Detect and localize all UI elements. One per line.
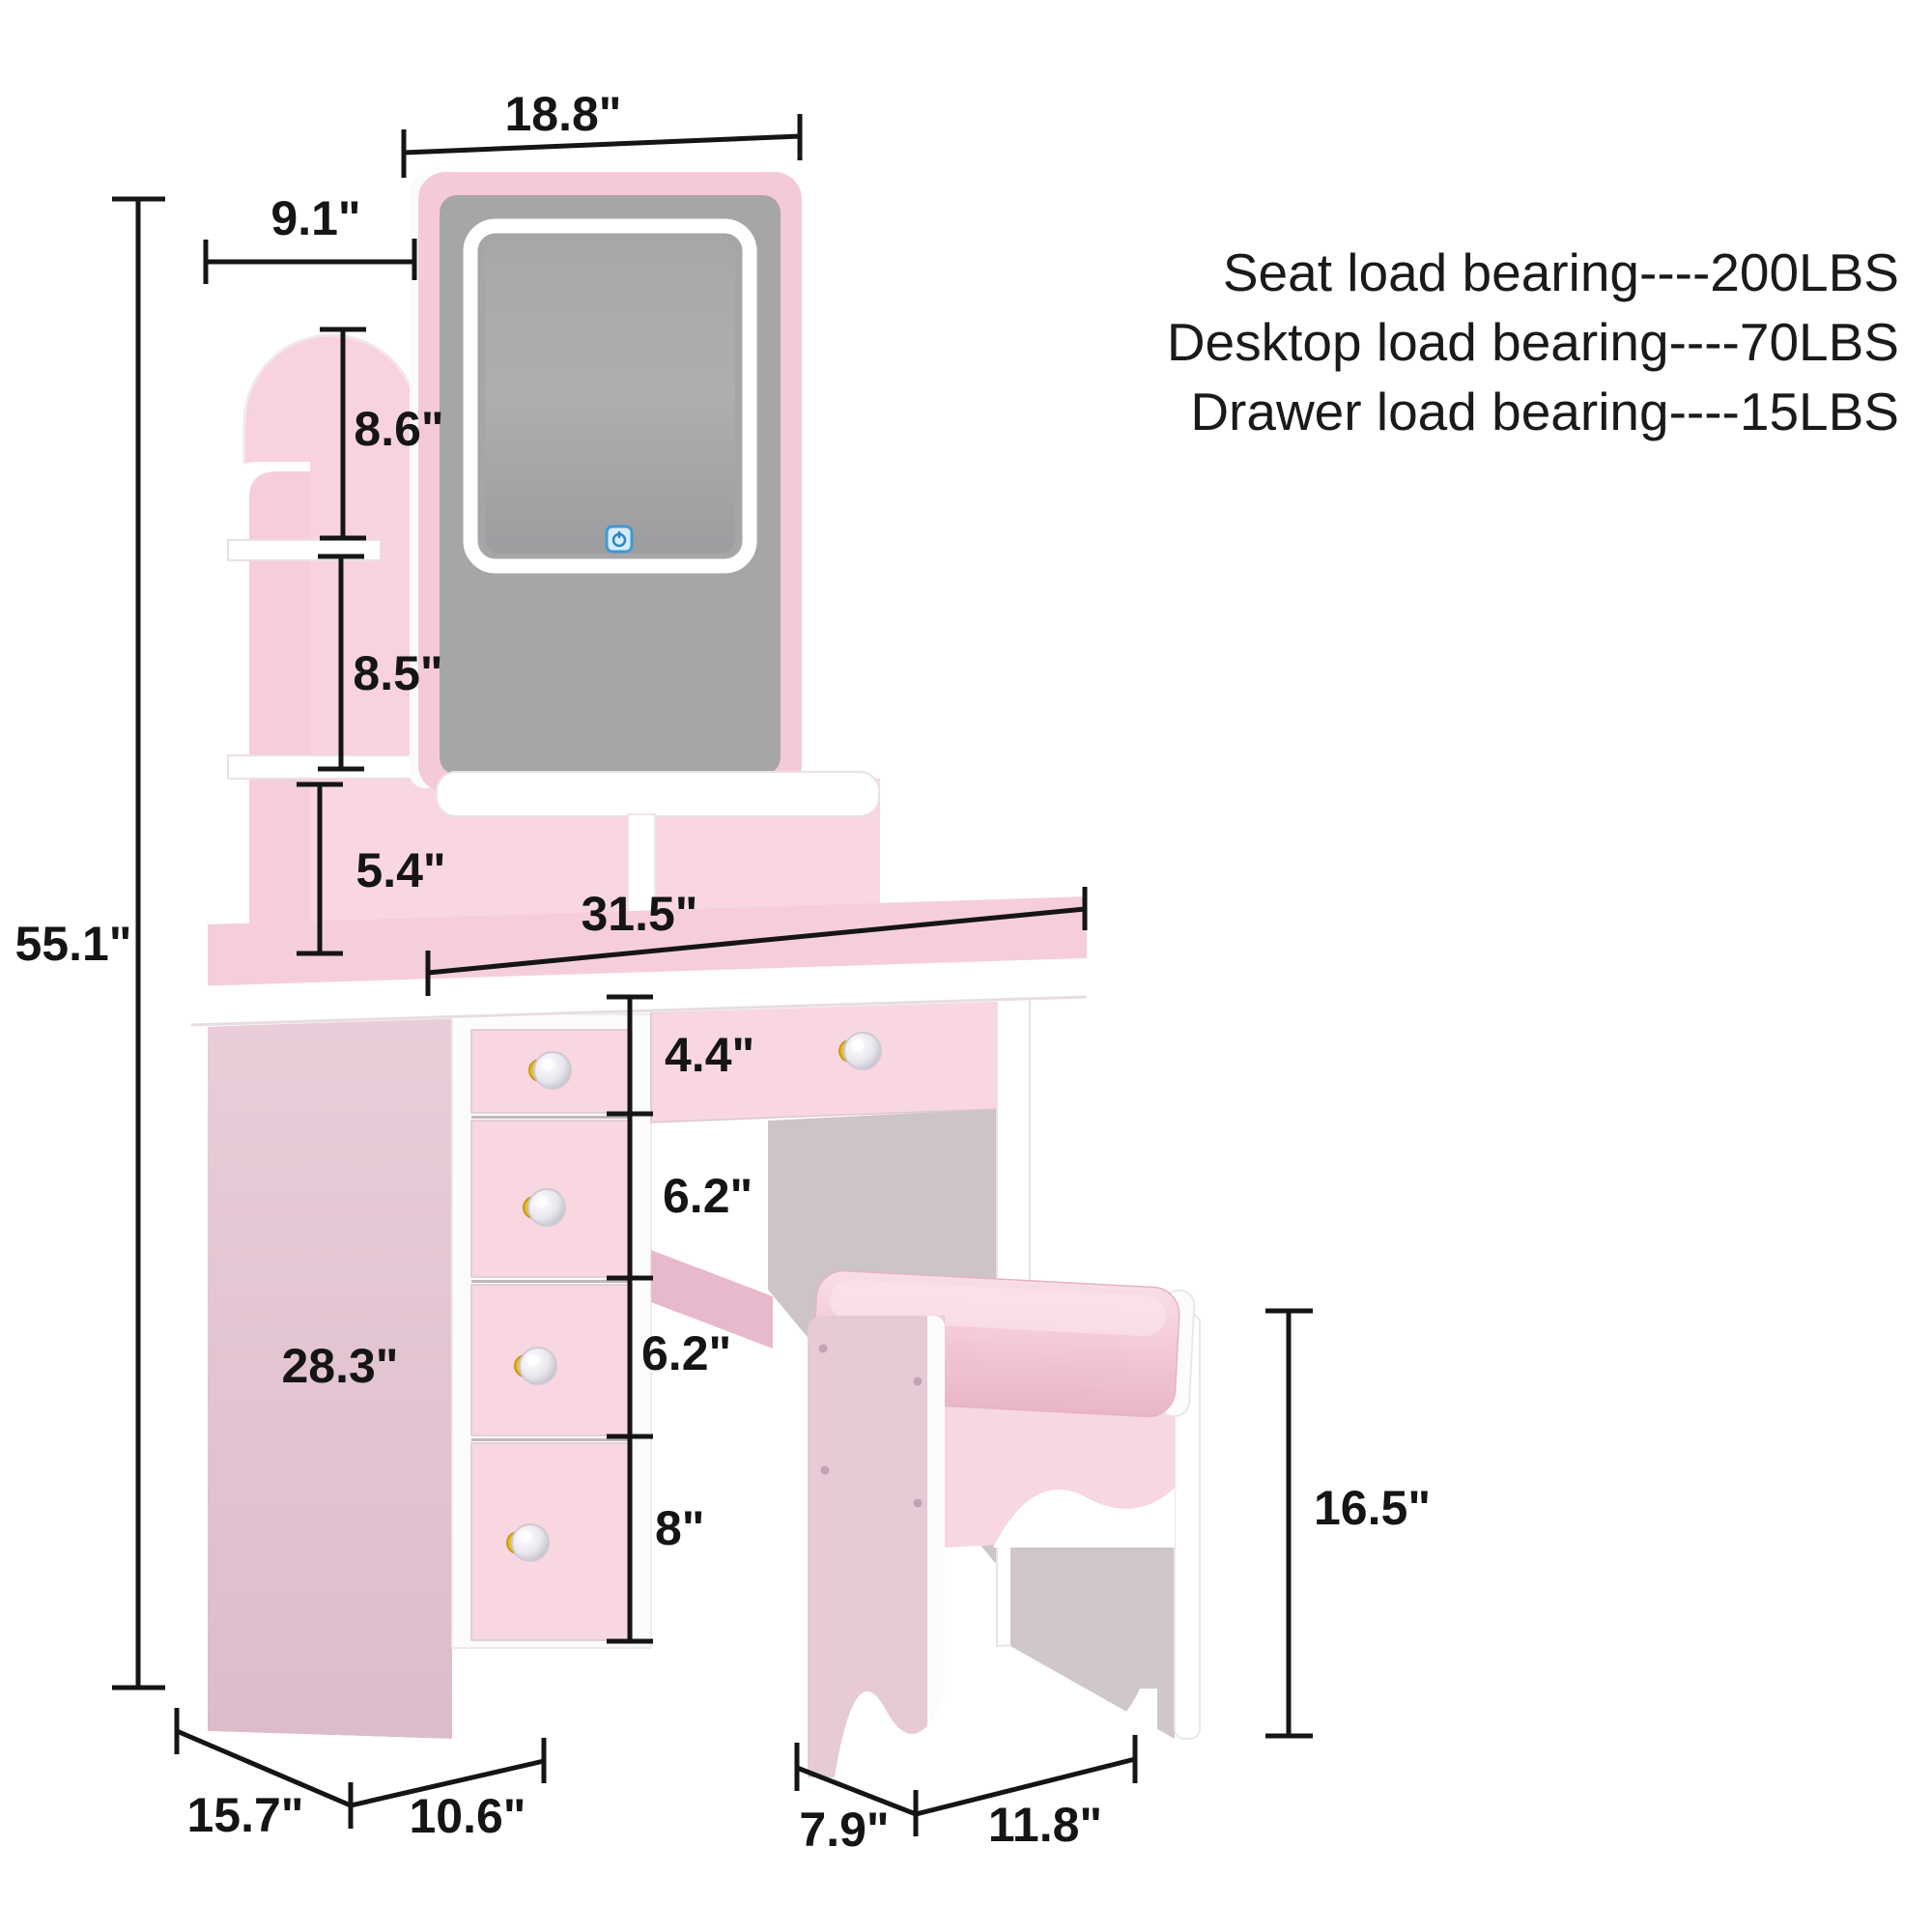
dim-middle-shelf-height-label: 8.5" (353, 645, 442, 701)
dim-second-drawer-height-label: 6.2" (663, 1168, 753, 1224)
dim-shelf-depth-label: 9.1" (270, 190, 360, 246)
dim-mirror-width-label: 18.8" (504, 86, 621, 142)
dim-bottom-drawer-height-label: 8" (655, 1500, 705, 1556)
dim-total-height-label: 55.1" (14, 916, 131, 972)
load-line-seat: Seat load bearing----200LBS (1167, 238, 1899, 307)
dim-upper-shelf-height-label: 8.6" (354, 401, 443, 457)
dim-cabinet-height-label: 28.3" (281, 1338, 398, 1394)
dim-stool-depth-label: 7.9" (799, 1802, 889, 1858)
dimension-diagram: 18.8" 9.1" 8.6" 8.5" 5.4" 55.1" 31.5" 4.… (0, 0, 1932, 1932)
dim-stool-height-label: 16.5" (1314, 1480, 1431, 1536)
load-line-drawer: Drawer load bearing----15LBS (1167, 377, 1899, 446)
dim-cabinet-width-label: 10.6" (409, 1788, 526, 1844)
dim-stool-width-label: 11.8" (988, 1797, 1102, 1853)
dim-third-drawer-height-label: 6.2" (641, 1325, 731, 1381)
load-line-desktop: Desktop load bearing----70LBS (1167, 307, 1899, 377)
dim-cubby-height-label: 5.4" (355, 842, 445, 898)
dim-desk-depth-label: 15.7" (186, 1787, 303, 1843)
dim-desktop-width-label: 31.5" (581, 886, 697, 942)
load-bearing-text: Seat load bearing----200LBS Desktop load… (1167, 238, 1899, 446)
dim-top-drawer-height-label: 4.4" (665, 1027, 754, 1083)
